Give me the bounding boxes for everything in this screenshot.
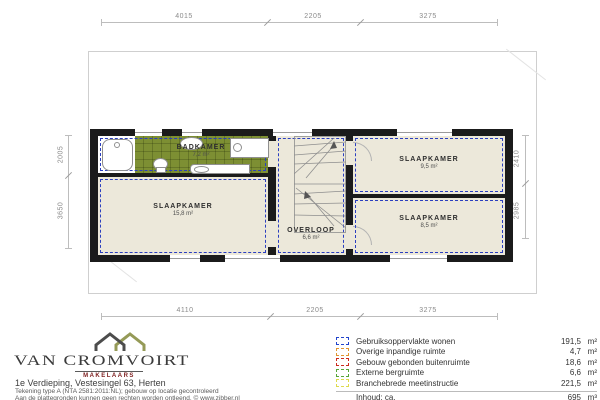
legend-row: Gebouw gebonden buitenruimte 18,6 m² [336,357,597,368]
legend-label: Overige inpandige ruimte [356,347,545,356]
dim-tick [497,19,498,26]
legend-value: 695 [545,393,581,400]
legend-unit: m² [581,358,597,367]
bathtub-faucet [114,142,120,148]
fine-print-line-2: Aan de plattegronden kunnen geen rechten… [15,395,240,400]
legend-swatch-meetinstructie [336,379,349,387]
legend-unit: m² [581,368,597,377]
floorplan-page: 4015 2205 3275 4110 2205 3275 2005 3650 … [0,0,600,400]
dim-tick [497,313,498,320]
legend-swatch-bergruimte [336,369,349,377]
property-address: 1e Verdieping, Vestesingel 63, Herten [15,378,166,388]
room-name: SLAAPKAMER [384,156,474,164]
roof-logo-icon [92,331,150,352]
legend-row: Branchebrede meetinstructie 221,5 m² [336,378,597,389]
legend-unit: m² [581,337,597,346]
brand-divider [75,371,143,372]
legend-row: Gebruiksoppervlakte wonen 191,5 m² [336,336,597,347]
dim-line [525,135,526,238]
legend-unit: m² [581,379,597,388]
legend-swatch-wonen [336,337,349,345]
legend-volume-row: Inhoud: ca. 695 m³ [336,393,597,400]
legend-label: Gebouw gebonden buitenruimte [356,358,545,367]
window [273,129,312,136]
door-opening-bathroom [268,141,276,167]
dim-value: 3650 [58,191,65,231]
legend-swatch-inpandig [336,348,349,356]
toilet-tank [156,167,166,173]
dim-value: 2410 [514,139,521,179]
legend-swatch-buitenruimte [336,358,349,366]
dim-tick [522,238,529,239]
legend-label: Externe bergruimte [356,368,545,377]
dim-tick [101,19,102,26]
floorplan: BADKAMER 7,2 m² SLAAPKAMER 15,8 m² OVERL… [90,129,513,262]
room-area: 7,2 m² [156,152,246,159]
room-name: OVERLOOP [266,227,356,235]
legend-label: Branchebrede meetinstructie [356,379,545,388]
legend-value: 191,5 [545,337,581,346]
room-area: 15,8 m² [138,211,228,218]
dim-value: 2205 [293,13,333,20]
legend-divider [336,391,597,392]
agency-branding: VAN CROMVOIRT MAKELAARS 1e Verdieping, V… [14,331,334,400]
dim-value: 2205 [295,307,335,314]
room-name: SLAAPKAMER [384,215,474,223]
dim-tick [65,135,72,136]
dim-value: 2985 [514,191,521,231]
window [225,255,280,262]
room-area: 6,6 m² [266,235,356,242]
legend-value: 6,6 [545,368,581,377]
room-name: SLAAPKAMER [138,203,228,211]
staircase [294,136,346,233]
dim-value: 4015 [164,13,204,20]
dim-value: 2005 [58,135,65,175]
dim-tick [522,135,529,136]
legend-row: Externe bergruimte 6,6 m² [336,368,597,379]
window [390,255,447,262]
room-label-slaapkamer-left: SLAAPKAMER 15,8 m² [138,203,228,218]
door-opening-bedroom-right-top [346,141,353,165]
window [397,129,452,136]
window [182,129,202,136]
room-name: BADKAMER [156,144,246,152]
company-name: VAN CROMVOIRT [14,352,190,370]
legend-label: Gebruiksoppervlakte wonen [356,337,545,346]
room-label-slaapkamer-right-top: SLAAPKAMER 9,5 m² [384,156,474,171]
dim-tick [65,248,72,249]
vanity-basin [194,166,209,173]
legend-value: 4,7 [545,347,581,356]
room-area: 8,5 m² [384,223,474,230]
dim-line [68,135,69,248]
room-label-badkamer: BADKAMER 7,2 m² [156,144,246,159]
window [170,255,200,262]
room-label-slaapkamer-right-bottom: SLAAPKAMER 8,5 m² [384,215,474,230]
area-legend: Gebruiksoppervlakte wonen 191,5 m² Overi… [336,336,597,400]
dim-line [101,316,497,317]
dim-value: 3275 [408,307,448,314]
legend-unit: m³ [581,393,597,400]
dim-line [101,22,497,23]
dim-tick [101,313,102,320]
window [135,129,162,136]
legend-value: 221,5 [545,379,581,388]
room-area: 9,5 m² [384,164,474,171]
legend-label: Inhoud: ca. [356,393,545,400]
legend-unit: m² [581,347,597,356]
room-label-overloop: OVERLOOP 6,6 m² [266,227,356,242]
dim-value: 3275 [408,13,448,20]
dim-value: 4110 [165,307,205,314]
legend-value: 18,6 [545,358,581,367]
legend-row: Overige inpandige ruimte 4,7 m² [336,347,597,358]
